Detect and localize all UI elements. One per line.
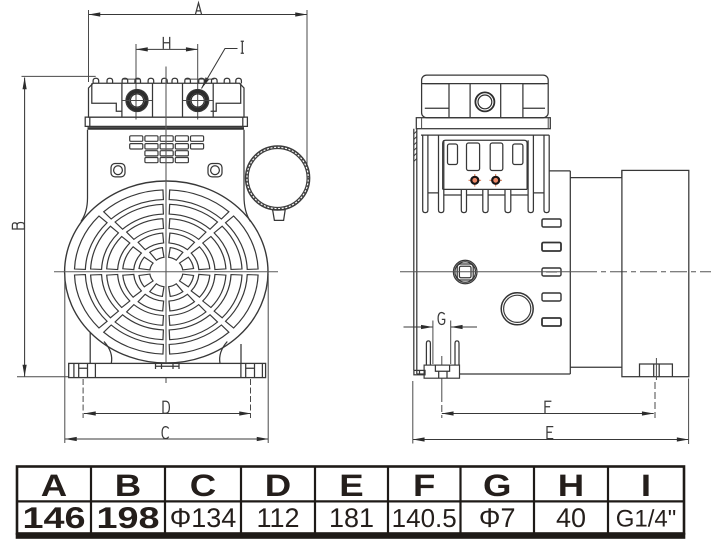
svg-text:G1/4": G1/4" [616, 506, 677, 533]
svg-text:B: B [115, 468, 141, 503]
svg-text:H: H [558, 468, 584, 503]
svg-text:A: A [41, 468, 67, 503]
svg-text:I: I [641, 468, 651, 503]
svg-text:G: G [483, 468, 511, 503]
svg-text:Φ134: Φ134 [170, 503, 237, 533]
svg-text:C: C [190, 468, 216, 503]
svg-text:198: 198 [96, 502, 159, 535]
svg-text:E: E [339, 468, 363, 503]
svg-text:F: F [413, 468, 435, 503]
svg-text:D: D [265, 468, 291, 503]
svg-text:112: 112 [256, 503, 299, 533]
svg-text:146: 146 [22, 502, 85, 535]
svg-text:181: 181 [329, 503, 374, 533]
svg-text:140.5: 140.5 [392, 503, 457, 533]
svg-text:Φ7: Φ7 [479, 503, 516, 533]
svg-text:40: 40 [556, 503, 586, 533]
